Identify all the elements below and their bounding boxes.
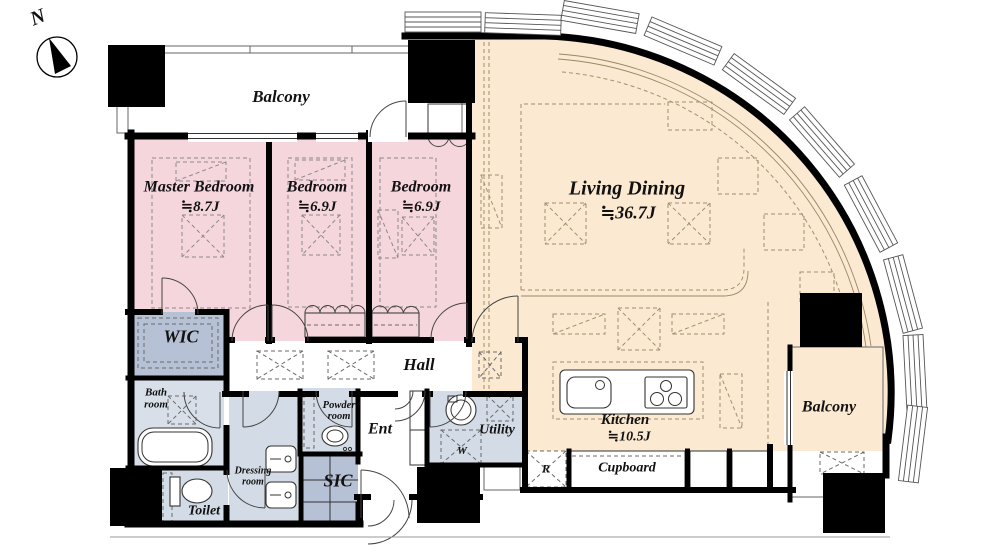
label-powder-room: Powderroom bbox=[323, 400, 356, 422]
pillar bbox=[408, 40, 475, 103]
label-bedroom-right: Bedroom bbox=[391, 180, 451, 197]
label-bath-room: Bathroom bbox=[144, 387, 168, 410]
label-hall: Hall bbox=[403, 356, 434, 374]
label-balcony-right: Balcony bbox=[802, 400, 856, 417]
furniture-x-box bbox=[257, 351, 303, 379]
balcony-door-opening bbox=[368, 129, 408, 142]
label-bedroom-center: Bedroom bbox=[287, 180, 347, 197]
pillar bbox=[823, 473, 885, 533]
label-bedroom-center-area: ≒6.9J bbox=[298, 200, 337, 216]
label-toilet: Toilet bbox=[188, 505, 220, 520]
stove-icon bbox=[645, 377, 687, 408]
label-bedroom-right-area: ≒6.9J bbox=[402, 200, 441, 216]
ac-unit-box bbox=[820, 452, 864, 474]
floor-plan-drawing bbox=[0, 0, 1000, 555]
label-washer-space: W bbox=[457, 446, 467, 458]
label-dressing-room: Dressingroom bbox=[235, 467, 272, 488]
pillar bbox=[417, 467, 480, 523]
furniture-x-box bbox=[328, 351, 374, 379]
pillar bbox=[108, 45, 165, 107]
label-refrigerator-space: R bbox=[542, 463, 550, 476]
label-utility: Utility bbox=[479, 424, 515, 439]
label-living-dining-area: ≒36.7J bbox=[600, 204, 656, 223]
cabinet bbox=[690, 451, 727, 488]
cabinet bbox=[732, 451, 768, 488]
shaft-box bbox=[484, 467, 520, 490]
floor-plan: N Balcony Master Bedroom ≒8.7J Bedroom ≒… bbox=[0, 0, 1000, 555]
label-master-bedroom-area: ≒8.7J bbox=[181, 200, 220, 216]
label-cupboard: Cupboard bbox=[598, 462, 656, 477]
ent-cabinet bbox=[410, 391, 426, 465]
pillar bbox=[110, 468, 162, 526]
label-sic: SIC bbox=[323, 472, 352, 491]
label-master-bedroom: Master Bedroom bbox=[144, 180, 255, 197]
label-balcony-top: Balcony bbox=[252, 88, 310, 106]
label-ent: Ent bbox=[368, 422, 392, 439]
window-icon bbox=[784, 371, 793, 445]
bathtub-icon bbox=[138, 428, 212, 466]
window-icon bbox=[188, 129, 297, 142]
kitchen-sink-icon bbox=[567, 377, 611, 408]
label-wic: WIC bbox=[163, 328, 198, 347]
hall-symbols bbox=[257, 351, 501, 379]
label-kitchen: Kitchen bbox=[601, 413, 649, 429]
compass-icon bbox=[37, 37, 77, 77]
label-kitchen-area: ≒10.5J bbox=[607, 431, 650, 446]
pillar bbox=[800, 293, 862, 347]
window-icon bbox=[316, 129, 358, 142]
label-living-dining: Living Dining bbox=[569, 179, 685, 200]
kitchen-island bbox=[553, 362, 703, 419]
